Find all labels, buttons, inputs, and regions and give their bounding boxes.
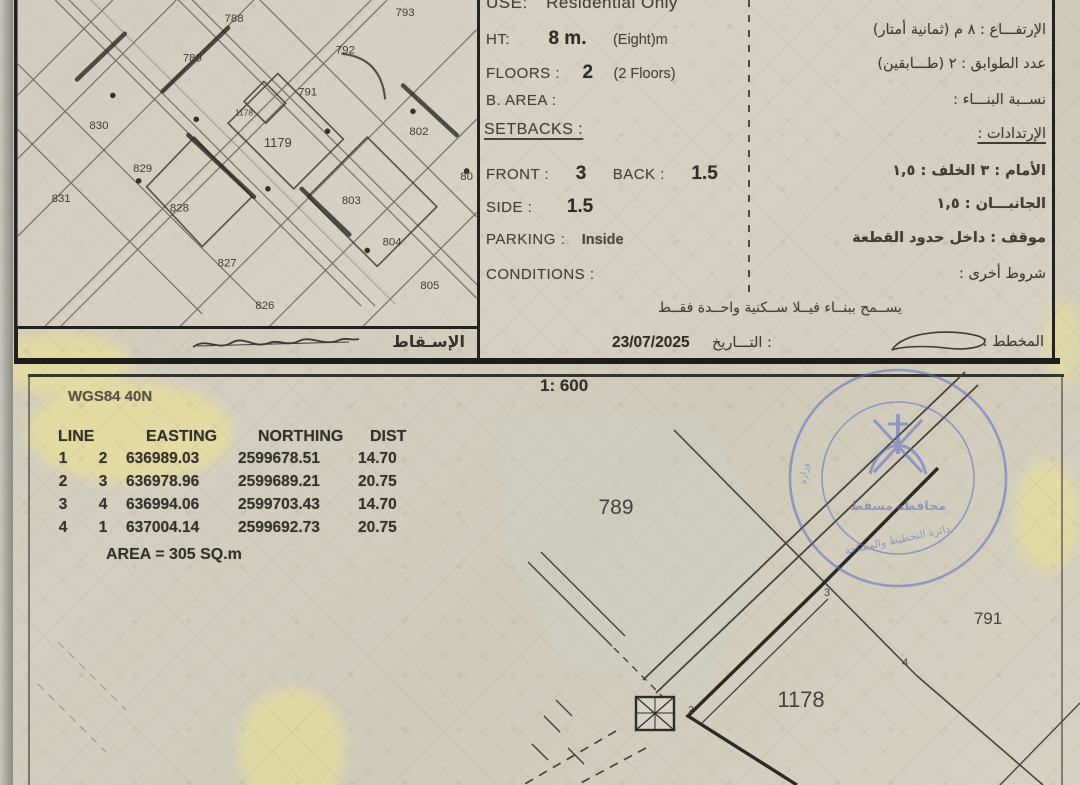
plan-plot-numbers: 7897911178342: [598, 496, 1002, 716]
col-header-line: LINE: [58, 428, 94, 446]
coordinate-cell: 4: [80, 496, 126, 519]
plot-number-label: 4: [902, 657, 908, 669]
height-row-ar: الإرتفـــاع : ٨ م (ثمانية أمتار): [873, 22, 1046, 38]
setbacks-heading: SETBACKS :: [484, 121, 583, 139]
col-header-northing: NORTHING: [258, 428, 343, 446]
plot-number-label: 827: [218, 257, 237, 269]
document-right-border: [1052, 0, 1055, 358]
highlight-blob: [1014, 460, 1080, 572]
floors-row: FLOORS : 2 (2 Floors): [486, 62, 676, 84]
coordinate-cell: 3: [80, 473, 126, 496]
plot-number-label: 831: [52, 193, 71, 205]
back-value: 1.5: [691, 163, 717, 184]
scanned-krooki-document: 7887937897927911178117983082983182882782…: [0, 0, 1080, 785]
plot-number-label: 789: [598, 496, 633, 519]
location-map: 7887937897927911178117983082983182882782…: [17, 0, 477, 326]
oman-emblem-icon: [870, 414, 926, 474]
plot-number-label: 1179: [264, 135, 292, 150]
plot-number-label: 3: [824, 587, 830, 599]
plot-number-label: 830: [89, 120, 108, 132]
built-area-row: B. AREA :: [486, 92, 556, 110]
map-plot-numbers: 7887937897927911178117983082983182882782…: [52, 7, 473, 312]
area-label: AREA = 305 SQ.m: [106, 546, 242, 564]
use-label: USE:: [486, 0, 528, 12]
coordinate-cell: 1: [46, 450, 80, 473]
front-value: 3: [576, 163, 587, 184]
setbacks-label-ar: الإرتدادات :: [977, 126, 1046, 142]
side-row: SIDE : 1.5: [486, 196, 593, 218]
plot-number-label: 804: [383, 236, 403, 248]
date-row: 23/07/2025 التـــاريخ :: [612, 334, 772, 352]
plot-number-label: 791: [298, 86, 317, 98]
coordinate-cell: 2599678.51: [238, 450, 358, 473]
plot-number-label: 1178: [777, 687, 824, 712]
projection-signature: [187, 331, 367, 357]
floors-value: 2: [582, 62, 593, 83]
plot-number-label: 792: [336, 45, 355, 57]
highlight-blob: [238, 688, 346, 785]
plot-1178-boundary: [688, 468, 938, 785]
plan-panel-right-border: [1061, 374, 1063, 785]
coordinate-cell: 636978.96: [126, 473, 238, 496]
plot-number-label: 2: [688, 705, 694, 716]
highlight-blob: [1044, 300, 1080, 384]
coordinate-cell: 3: [46, 496, 80, 519]
plot-number-label: 829: [133, 163, 152, 175]
parking-row: PARKING : Inside: [486, 231, 624, 249]
date-value: 23/07/2025: [612, 334, 690, 351]
coordinate-cell: 4: [46, 519, 80, 542]
plot-number-label: 803: [342, 195, 361, 207]
height-note: (Eight)m: [613, 32, 668, 48]
stamp-center-text: محافظة مسقط: [850, 499, 946, 513]
height-label: HT:: [486, 31, 510, 48]
coordinate-cell: 2599689.21: [238, 473, 358, 496]
projection-label: الإسـقاط: [392, 332, 465, 351]
setbacks-heading-ar: الإرتدادات :: [977, 126, 1046, 142]
other-conditions-row-ar: شروط أخرى :: [959, 266, 1046, 282]
projection-row: الإسـقاط: [17, 329, 477, 358]
front-back-row-ar: الأمام : ٣ الخلف : ١,٥: [892, 163, 1046, 179]
plot-number-label: 1178: [235, 107, 253, 117]
coordinate-cell: 14.70: [358, 496, 420, 519]
coordinate-cell: 2599692.73: [238, 519, 358, 542]
col-header-easting: EASTING: [146, 428, 217, 446]
conditions-row: CONDITIONS :: [486, 266, 595, 284]
height-row: HT: 8 m. (Eight)m: [486, 28, 668, 50]
coordinate-cell: 637004.14: [126, 519, 238, 542]
sides-row-ar: الجانبـــان : ١,٥: [937, 196, 1046, 212]
side-value: 1.5: [567, 196, 593, 217]
planner-signature: [884, 326, 1004, 358]
plot-789-area: [500, 415, 775, 700]
coordinate-cell: 20.75: [358, 473, 420, 496]
back-label: BACK :: [613, 166, 665, 183]
col-header-dist: DIST: [370, 428, 406, 446]
coordinate-cell: 636994.06: [126, 496, 238, 519]
coordinate-cell: 636989.03: [126, 450, 238, 473]
front-label: FRONT :: [486, 166, 549, 183]
plan-panel-left-border: [28, 374, 30, 785]
built-area-label: B. AREA :: [486, 92, 556, 109]
map-panel-right-border: [477, 0, 480, 358]
coordinate-cell: 14.70: [358, 450, 420, 473]
plot-number-label: 788: [225, 13, 244, 25]
utility-box-symbol: [636, 697, 674, 730]
coordinate-table: 12636989.032599678.5114.7023636978.96259…: [46, 450, 420, 542]
use-row: USE: Residential Only: [486, 0, 678, 13]
use-value: Residential Only: [546, 0, 678, 12]
plot-number-label: 789: [183, 53, 202, 65]
scanner-edge: [0, 0, 13, 785]
coordinate-cell: 2599703.43: [238, 496, 358, 519]
parking-label: PARKING :: [486, 231, 565, 248]
column-divider-dashed: [748, 0, 750, 300]
stamp-bottom-text: دائرة التخطيط والمساحة: [844, 523, 952, 557]
plot-number-label: 793: [396, 7, 415, 19]
datum-label: WGS84 40N: [68, 388, 152, 405]
side-label: SIDE :: [486, 199, 532, 216]
front-back-row: FRONT : 3 BACK : 1.5: [486, 163, 718, 185]
setbacks-label: SETBACKS :: [484, 121, 583, 138]
height-value: 8 m.: [548, 28, 586, 49]
coordinate-cell: 2: [46, 473, 80, 496]
conditions-label: CONDITIONS :: [486, 266, 595, 283]
plot-number-label: 791: [974, 609, 1002, 628]
plot-number-label: 826: [255, 300, 274, 312]
plot-number-label: 828: [170, 203, 189, 215]
conditions-note-ar: يســمح ببنــاء فيــلا ســكنية واحــدة فق…: [560, 300, 1000, 316]
plot-number-label: 80: [460, 171, 473, 183]
ratio-row-ar: نســبة البنـــاء :: [953, 92, 1046, 108]
coordinate-cell: 1: [80, 519, 126, 542]
parking-value: Inside: [582, 232, 624, 248]
plot-number-label: 802: [409, 126, 428, 138]
floors-label: FLOORS :: [486, 65, 560, 82]
parking-row-ar: موقف : داخل حدود القطعة: [852, 230, 1046, 246]
coordinate-cell: 2: [80, 450, 126, 473]
scale-label: 1: 600: [540, 376, 588, 396]
date-label: التـــاريخ :: [712, 335, 772, 351]
coordinate-cell: 20.75: [358, 519, 420, 542]
floors-row-ar: عدد الطوابق : ٢ (طـــابقين): [877, 56, 1046, 72]
section-divider: [14, 358, 1060, 364]
plot-number-label: 805: [420, 280, 439, 292]
floors-note: (2 Floors): [614, 66, 676, 82]
